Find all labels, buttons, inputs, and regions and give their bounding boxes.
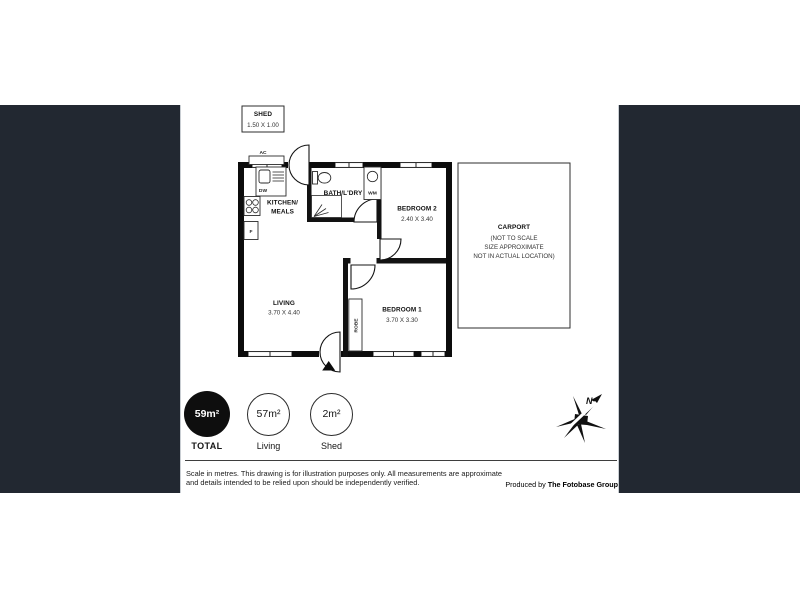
shed-area-label: Shed: [310, 441, 353, 451]
living-area-value: 57m²: [257, 408, 281, 420]
bedroom1-dims: 3.70 X 3.30: [386, 317, 418, 324]
produced-by-prefix: Produced by: [505, 480, 547, 489]
carport-note-1: (NOT TO SCALE: [490, 235, 537, 242]
dw-label: DW: [259, 188, 268, 194]
shed-area-value: 2m²: [322, 408, 340, 420]
bath-label: BATH/L'DRY: [324, 190, 363, 197]
carport-label: CARPORT: [498, 224, 530, 231]
living-area-label: Living: [247, 441, 290, 451]
wall-segment: [292, 351, 319, 357]
living-area-badge: 57m²: [247, 393, 290, 436]
wall-segment: [238, 351, 248, 357]
fridge-label: F: [250, 229, 253, 235]
sink-icon: [259, 170, 270, 183]
shed-label: SHED: [254, 111, 272, 118]
robe: ROBE: [349, 299, 362, 351]
carport-note-2: SIZE APPROXIMATE: [484, 244, 543, 251]
floor-plan-drawing: SHED 1.50 X 1.00 CARPORT (NOT TO SCALE S…: [0, 0, 800, 600]
bedroom2-label: BEDROOM 2: [397, 206, 437, 213]
bath-door-swing: [354, 199, 377, 222]
kitchen-fixtures: AC DW F: [244, 150, 286, 240]
toilet-icon: [318, 173, 331, 184]
wm-label: WM: [368, 191, 377, 197]
shower-spray: [314, 205, 329, 217]
wall-segment: [307, 218, 358, 223]
living-label: LIVING: [273, 300, 295, 307]
ac-unit-icon: [249, 156, 284, 165]
bedroom2-door-swing: [380, 239, 401, 260]
fotobase-logo-icon: N: [553, 391, 609, 447]
wall-segment: [445, 351, 452, 357]
living-dims: 3.70 X 4.40: [268, 310, 300, 317]
produced-by: Produced by The Fotobase Group: [420, 480, 618, 489]
wall-segment: [238, 162, 244, 357]
wall-segment: [414, 351, 421, 357]
wall-segment: [308, 162, 335, 168]
bedroom1-door-swing: [351, 265, 375, 289]
back-door-swing: [289, 145, 309, 185]
bedroom2-dims: 2.40 X 3.40: [401, 216, 433, 223]
shed-dims: 1.50 X 1.00: [247, 122, 279, 129]
kitchen-label-2: MEALS: [271, 209, 295, 216]
carport-note-3: NOT IN ACTUAL LOCATION): [473, 253, 554, 260]
wall-segment: [446, 162, 452, 357]
total-area-value: 59m²: [195, 408, 220, 420]
carport-box: CARPORT (NOT TO SCALE SIZE APPROXIMATE N…: [458, 163, 570, 328]
toilet-cistern: [313, 172, 318, 185]
robe-label: ROBE: [353, 318, 359, 333]
stove-icon: [244, 197, 260, 216]
kitchen-label-1: KITCHEN/: [267, 200, 298, 207]
total-area-badge: 59m²: [184, 391, 230, 437]
ac-label: AC: [259, 150, 267, 156]
shed-area-badge: 2m²: [310, 393, 353, 436]
footer-divider: [185, 460, 617, 461]
bedroom1-label: BEDROOM 1: [382, 307, 422, 314]
total-area-label: TOTAL: [184, 441, 230, 451]
logo-north-letter: N: [586, 396, 593, 406]
shed-box: SHED 1.50 X 1.00: [242, 106, 284, 132]
wall-segment: [432, 162, 452, 168]
produced-by-company: The Fotobase Group: [548, 480, 618, 489]
wall-segment: [343, 258, 348, 357]
